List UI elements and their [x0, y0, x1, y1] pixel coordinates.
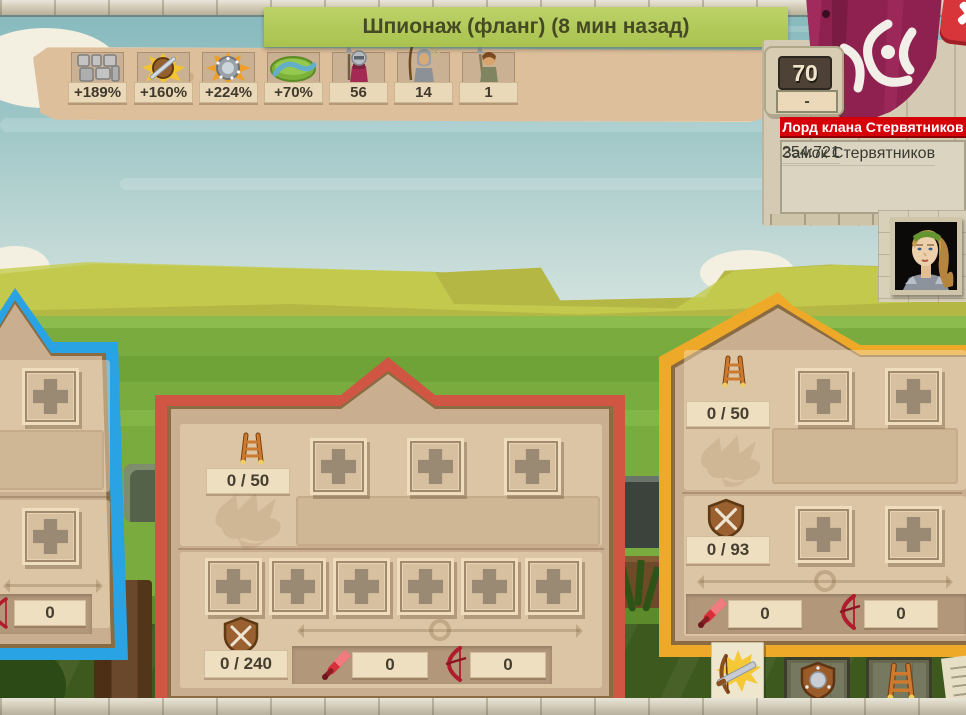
rank-text: Лорд клана Стервятников [782, 119, 963, 135]
stat-value: 56 [329, 82, 388, 103]
level-badge: 70 [778, 56, 832, 90]
defender-portrait [890, 217, 962, 295]
stat-value: +160% [134, 82, 193, 103]
unit-slot-button[interactable] [333, 558, 390, 615]
ornament-band [0, 430, 104, 490]
title-banner: Шпионаж (фланг) (8 мин назад) [264, 7, 788, 47]
stat-value: +224% [199, 82, 258, 103]
stat-tile-melee-units: 56 [332, 52, 385, 102]
ladder-icon [884, 662, 918, 702]
courtyard-capacity: 0 / 240 [204, 650, 288, 678]
bow-count: 0 [864, 600, 938, 628]
section-divider [178, 548, 604, 550]
stat-value: +189% [68, 82, 127, 103]
melee-soldier-icon [332, 52, 385, 84]
courtyard-capacity: 0 / 93 [686, 536, 770, 564]
moat-icon [267, 52, 320, 84]
courtyard-shield-icon [706, 498, 746, 540]
bottom-stone-bar [0, 698, 966, 715]
unit-slot-button[interactable] [885, 506, 942, 563]
castle-coordinates: 254:721 [782, 142, 840, 164]
unit-slot-button[interactable] [22, 508, 79, 565]
dragon-watermark [208, 490, 298, 550]
ornament-band [296, 496, 600, 546]
unit-slot-button[interactable] [795, 368, 852, 425]
ring-ornament [429, 619, 451, 641]
title-text: Шпионаж (фланг) (8 мин назад) [363, 15, 690, 39]
ring-ornament [814, 570, 836, 592]
rank-banner: Лорд клана Стервятников [780, 117, 966, 136]
bow-count: 0 [14, 600, 86, 626]
level-value: 70 [792, 60, 818, 87]
stat-tile-ranged-units: 14 [397, 52, 450, 102]
espionage-screen: +189% +160% +224% [0, 0, 966, 715]
unit-slot-button[interactable] [504, 438, 561, 495]
unit-slot-button[interactable] [397, 558, 454, 615]
sword-count: 0 [352, 652, 428, 678]
bow-icon [0, 596, 14, 630]
wooden-shield-icon [799, 661, 837, 701]
unit-slot-button[interactable] [269, 558, 326, 615]
stat-tile-gate: +160% [137, 52, 190, 102]
unit-slot-button[interactable] [205, 558, 262, 615]
unit-slot-button[interactable] [885, 368, 942, 425]
bow-sword-icon [714, 648, 762, 700]
unit-slot-button[interactable] [795, 506, 852, 563]
stat-value: 1 [459, 82, 518, 103]
unit-slot-button[interactable] [22, 368, 79, 425]
sword-count: 0 [728, 600, 802, 628]
bow-icon [438, 644, 470, 684]
stat-tile-moat: +70% [267, 52, 320, 102]
section-divider [682, 492, 962, 494]
sword-icon [696, 596, 730, 630]
sword-icon [320, 648, 354, 682]
ladder-icon [238, 432, 266, 466]
stat-tile-wall: +189% [71, 52, 124, 102]
ladder-capacity: 0 / 50 [686, 401, 770, 427]
ladder-capacity: 0 / 50 [206, 468, 290, 494]
unit-slot-button[interactable] [461, 558, 518, 615]
spearman-unit-icon [462, 52, 515, 84]
stat-value: 14 [394, 82, 453, 103]
stat-value: +70% [264, 82, 323, 103]
ladder-icon [720, 355, 748, 389]
stat-tile-spear-units: 1 [462, 52, 515, 102]
ranged-wave-tab[interactable] [711, 642, 764, 705]
archer-unit-icon [397, 52, 450, 84]
section-divider [0, 496, 110, 498]
bow-count: 0 [470, 652, 546, 678]
unit-slot-button[interactable] [407, 438, 464, 495]
unit-slot-button[interactable] [310, 438, 367, 495]
honor-value: - [804, 93, 809, 111]
boss-shield-icon [202, 52, 255, 84]
gate-shield-icon [137, 52, 190, 84]
stat-tile-shield: +224% [202, 52, 255, 102]
castle-wall-icon [71, 52, 124, 84]
portrait-image [895, 222, 957, 290]
castle-info-box: Замок Стервятников 254:721 [780, 140, 966, 214]
unit-slot-button[interactable] [525, 558, 582, 615]
ornament-band [772, 428, 958, 484]
honor-box: - [776, 90, 838, 113]
dragon-watermark [694, 430, 776, 492]
bow-icon [832, 592, 864, 632]
arrow-ornament [6, 584, 100, 587]
